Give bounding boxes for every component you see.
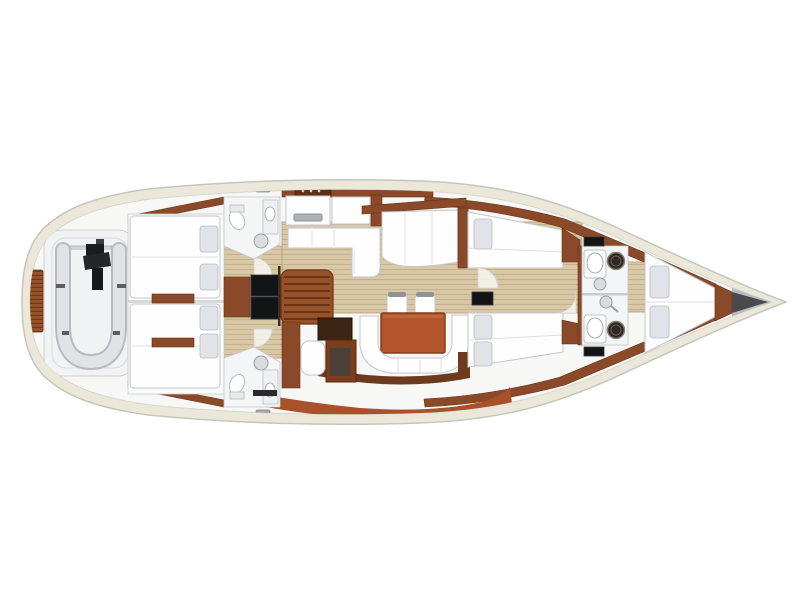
v-berth-pillow-2 — [650, 306, 669, 338]
mid-starboard-pillow-2 — [474, 342, 492, 366]
dinghy — [56, 239, 126, 362]
yacht-layout-plan — [0, 0, 800, 600]
mid-port-pillow — [474, 219, 492, 249]
starboard-head-threshold — [253, 390, 277, 396]
heads-hardware-bottom — [584, 347, 604, 356]
aft-starboard-pillow-2 — [200, 334, 218, 358]
mid-port-nightstand — [458, 208, 468, 268]
boat-floor-plan-svg — [0, 0, 800, 600]
nav-bulkhead — [282, 322, 300, 388]
salon-table-edge-highlight — [383, 315, 443, 318]
dinghy-handle-right — [113, 331, 120, 335]
aft-starboard-pillow-1 — [200, 306, 218, 330]
stove-knob-2 — [310, 190, 313, 193]
settee-cushions — [382, 210, 458, 267]
heads-divider — [582, 293, 628, 296]
mast-post — [278, 266, 281, 326]
nav-desk-panel — [330, 348, 350, 376]
port-head-shower — [254, 234, 268, 248]
stove-knob-3 — [318, 190, 321, 193]
stbd-fwd-porthole — [608, 322, 625, 339]
aft-cabins — [128, 214, 224, 394]
port-bedside-shelf — [152, 294, 194, 303]
stbd-fwd-drain — [600, 296, 612, 308]
dinghy-oarlock-right — [117, 284, 126, 288]
engine-hatch-1 — [251, 275, 279, 296]
dinghy-oarlock-left — [56, 284, 65, 288]
starboard-bedside-shelf — [152, 338, 194, 347]
salon-table — [381, 313, 445, 353]
interior — [27, 184, 776, 419]
companionway-cabinet — [224, 277, 250, 317]
aft-port-pillow-2 — [200, 264, 218, 290]
stbd-fwd-sink — [587, 318, 603, 338]
dinghy-handle-left — [62, 331, 69, 335]
v-berth — [645, 252, 776, 353]
corridor-hatch — [472, 292, 493, 305]
mid-starboard-pillow-1 — [474, 315, 492, 339]
starboard-head-shower — [254, 356, 268, 370]
aft-port-pillow-1 — [200, 226, 218, 252]
companionway-stairs — [281, 270, 333, 324]
mid-starboard-wardrobe — [562, 320, 580, 344]
heads-hardware-top — [584, 237, 604, 246]
nav-seat — [301, 341, 325, 375]
port-fwd-sink — [587, 253, 603, 273]
forward-heads — [578, 237, 628, 356]
nav-chart-locker — [318, 318, 352, 340]
v-berth-pillow-1 — [650, 266, 669, 298]
port-fwd-porthole — [608, 253, 625, 270]
port-fwd-drain — [594, 278, 606, 290]
heads-bulkhead — [578, 246, 582, 345]
engine-hatch-2 — [251, 297, 279, 319]
port-head-sink — [265, 207, 275, 221]
galley-sink — [294, 214, 322, 221]
port-head-cistern — [230, 205, 244, 212]
starboard-head-cistern — [230, 392, 244, 399]
